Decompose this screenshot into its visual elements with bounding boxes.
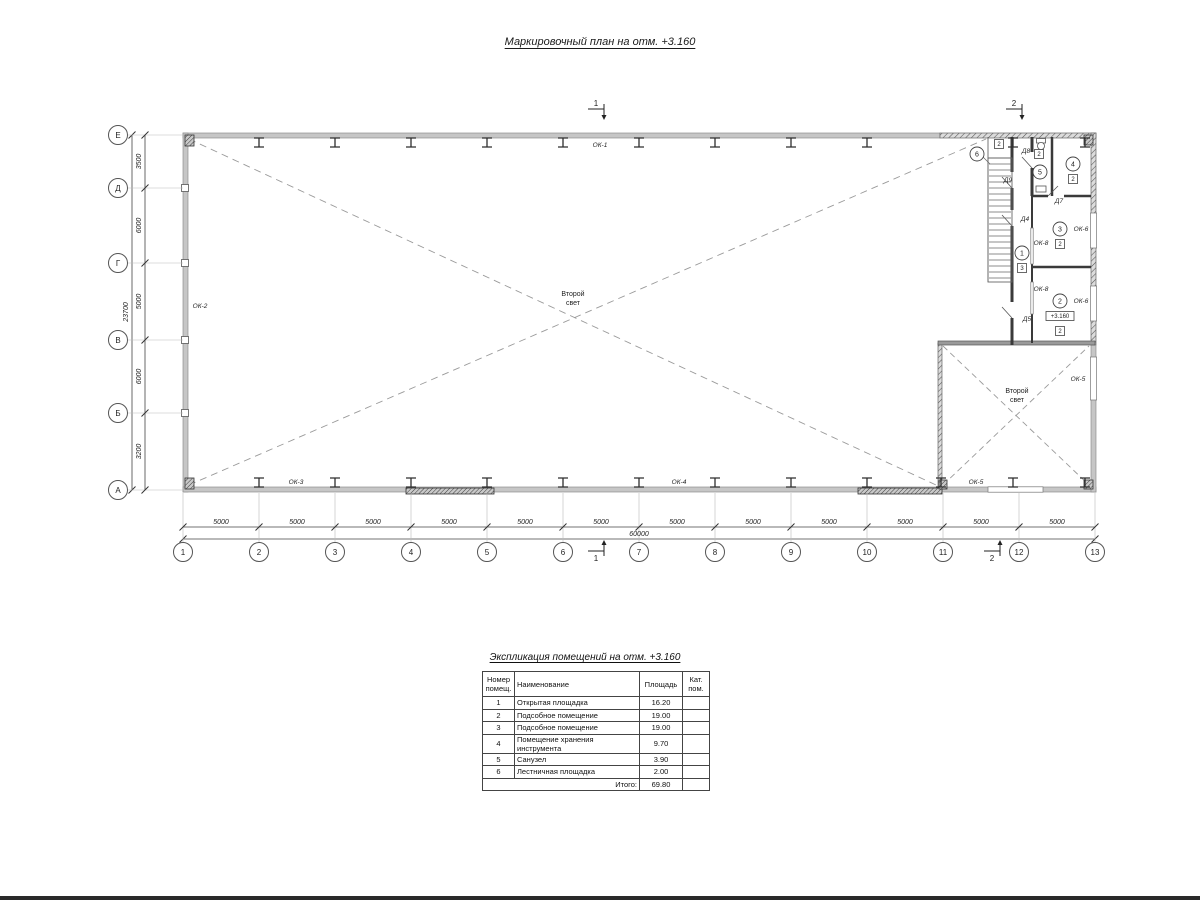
table-cell: 19.00	[640, 722, 683, 735]
table-cell	[683, 753, 710, 766]
svg-text:Б: Б	[115, 409, 120, 418]
window-strips	[988, 213, 1097, 492]
svg-text:5000: 5000	[213, 519, 229, 526]
corner-columns	[185, 135, 1093, 489]
door-label: Д4	[1020, 216, 1030, 223]
door-label: Д7	[1054, 198, 1064, 205]
section-label: 2	[1012, 99, 1017, 108]
window-label: ОК-8	[1034, 240, 1049, 247]
table-cell: 3	[483, 722, 515, 735]
top-wall-hall	[183, 133, 940, 138]
window-label: ОК-5	[969, 479, 984, 486]
room-markers: 6252423222+3.16013	[970, 140, 1080, 336]
table-cell	[683, 709, 710, 722]
window-label: ОК-6	[1074, 226, 1089, 233]
window-ok5	[1090, 357, 1096, 400]
svg-text:6000: 6000	[136, 369, 143, 385]
table-cell: 2.00	[640, 766, 683, 779]
svg-text:6: 6	[975, 152, 979, 159]
table-cell: 1	[483, 697, 515, 710]
svg-text:5000: 5000	[136, 294, 143, 310]
table-cell: Лестничная площадка	[515, 766, 640, 779]
svg-text:5000: 5000	[517, 519, 533, 526]
door-label: Д5	[1022, 316, 1032, 323]
table-cell: Санузел	[515, 753, 640, 766]
outer-walls	[183, 133, 1096, 492]
floor-plan-svg: 1500025000350004500055000650007500085000…	[0, 0, 1200, 640]
section-label: 1	[594, 99, 599, 108]
toilet-icon	[1038, 142, 1045, 149]
svg-text:5000: 5000	[669, 519, 685, 526]
drawing-sheet: { "sheet": { "title": "Маркировочный пла…	[0, 0, 1200, 900]
table-total-value: 69.80	[640, 778, 683, 791]
svg-text:5000: 5000	[365, 519, 381, 526]
gate-strip	[858, 488, 942, 494]
gate-strip	[406, 488, 494, 494]
table-total-row: Итого:69.80	[483, 778, 710, 791]
svg-text:А: А	[115, 486, 121, 495]
void-label: свет	[1010, 397, 1025, 404]
table-cell: 19.00	[640, 709, 683, 722]
void-cross-right	[943, 346, 1089, 485]
svg-text:5000: 5000	[821, 519, 837, 526]
void-cross-hall	[189, 139, 986, 485]
svg-text:Е: Е	[115, 131, 120, 140]
window-label: ОК-2	[193, 303, 208, 310]
svg-text:5000: 5000	[593, 519, 609, 526]
table-cell: 2	[483, 709, 515, 722]
svg-text:4: 4	[1071, 162, 1075, 169]
table-header: Номер помещ.	[483, 672, 515, 697]
table-row: 1Открытая площадка16.20	[483, 697, 710, 710]
table-cell: Подсобное помещение	[515, 709, 640, 722]
table-row: 4Помещение хранения инструмента9.70	[483, 734, 710, 753]
svg-text:13: 13	[1091, 548, 1100, 557]
table-header: Кат. пом.	[683, 672, 710, 697]
svg-text:1: 1	[1020, 251, 1024, 258]
column-ibeams	[254, 138, 1090, 487]
svg-text:Д: Д	[115, 184, 121, 193]
svg-text:5000: 5000	[289, 519, 305, 526]
svg-text:5: 5	[485, 548, 490, 557]
svg-text:5000: 5000	[1049, 519, 1065, 526]
top-wall-annex	[940, 133, 1096, 138]
sink-icon	[1036, 186, 1046, 192]
table-cell: Подсобное помещение	[515, 722, 640, 735]
svg-text:8: 8	[713, 548, 718, 557]
window-label: ОК-8	[1034, 286, 1049, 293]
svg-text:1: 1	[181, 548, 186, 557]
svg-text:6000: 6000	[136, 218, 143, 234]
svg-text:3: 3	[1058, 227, 1062, 234]
section-markers: 1212	[588, 99, 1025, 563]
void-label: Второй	[1005, 387, 1028, 395]
door-label: Д9	[1003, 177, 1013, 184]
window-label: ОК-1	[593, 142, 608, 149]
void-label: свет	[566, 300, 581, 307]
table-cell: Помещение хранения инструмента	[515, 734, 640, 753]
window-label: ОК-6	[1074, 298, 1089, 305]
table-cell: 16.20	[640, 697, 683, 710]
svg-text:+3.160: +3.160	[1051, 314, 1070, 320]
svg-text:10: 10	[863, 548, 872, 557]
table-title: Экспликация помещений на отм. +3.160	[420, 652, 750, 663]
svg-text:11: 11	[939, 548, 948, 557]
table-row: 6Лестничная площадка2.00	[483, 766, 710, 779]
table-cell	[683, 778, 710, 791]
table-header: Наименование	[515, 672, 640, 697]
staircase	[983, 137, 1012, 282]
table-cell: 3.90	[640, 753, 683, 766]
sheet-edge	[0, 896, 1200, 900]
table-row: 3Подсобное помещение19.00	[483, 722, 710, 735]
svg-text:2: 2	[257, 548, 262, 557]
section-label: 1	[594, 554, 599, 563]
table-cell	[683, 766, 710, 779]
plan-labels: ОК-1ОК-2ОК-3ОК-4ОК-5ОК-5ОК-6ОК-6ОК-8ОК-8…	[193, 142, 1089, 486]
room2-bottom-wall	[938, 341, 1095, 345]
svg-text:3200: 3200	[136, 444, 143, 460]
window-ok6	[1090, 286, 1096, 321]
void-label: Второй	[561, 290, 584, 298]
window-ok6	[1090, 213, 1096, 248]
window-label: ОК-4	[672, 479, 687, 486]
svg-text:3500: 3500	[136, 154, 143, 170]
table-title-text: Экспликация помещений на отм. +3.160	[490, 652, 681, 663]
table-cell	[683, 697, 710, 710]
svg-text:Г: Г	[116, 259, 121, 268]
void-left-wall	[938, 343, 942, 491]
table-cell: 9.70	[640, 734, 683, 753]
svg-text:2: 2	[1058, 299, 1062, 306]
svg-text:4: 4	[409, 548, 414, 557]
table-cell	[683, 734, 710, 753]
table-cell: Открытая площадка	[515, 697, 640, 710]
svg-text:3: 3	[333, 548, 338, 557]
svg-text:В: В	[115, 336, 120, 345]
exp-table: Номер помещ.НаименованиеПлощадьКат. пом.…	[482, 671, 710, 791]
window-label: ОК-5	[1071, 376, 1086, 383]
svg-text:9: 9	[789, 548, 794, 557]
table-cell	[683, 722, 710, 735]
table-cell: 4	[483, 734, 515, 753]
svg-text:60000: 60000	[629, 531, 649, 538]
table-row: 2Подсобное помещение19.00	[483, 709, 710, 722]
window-label: ОК-3	[289, 479, 304, 486]
svg-text:5000: 5000	[973, 519, 989, 526]
table-cell: 6	[483, 766, 515, 779]
table-total-label: Итого:	[483, 778, 640, 791]
table-header: Площадь	[640, 672, 683, 697]
svg-text:5: 5	[1038, 170, 1042, 177]
svg-text:23700: 23700	[123, 302, 130, 323]
bottom-wall	[183, 487, 1096, 492]
section-label: 2	[990, 554, 995, 563]
svg-text:12: 12	[1015, 548, 1024, 557]
table-cell: 5	[483, 753, 515, 766]
svg-text:6: 6	[561, 548, 566, 557]
svg-text:5000: 5000	[441, 519, 457, 526]
svg-text:7: 7	[637, 548, 642, 557]
svg-text:5000: 5000	[745, 519, 761, 526]
door-label: Д8	[1021, 148, 1031, 155]
table-row: 5Санузел3.90	[483, 753, 710, 766]
svg-text:5000: 5000	[897, 519, 913, 526]
